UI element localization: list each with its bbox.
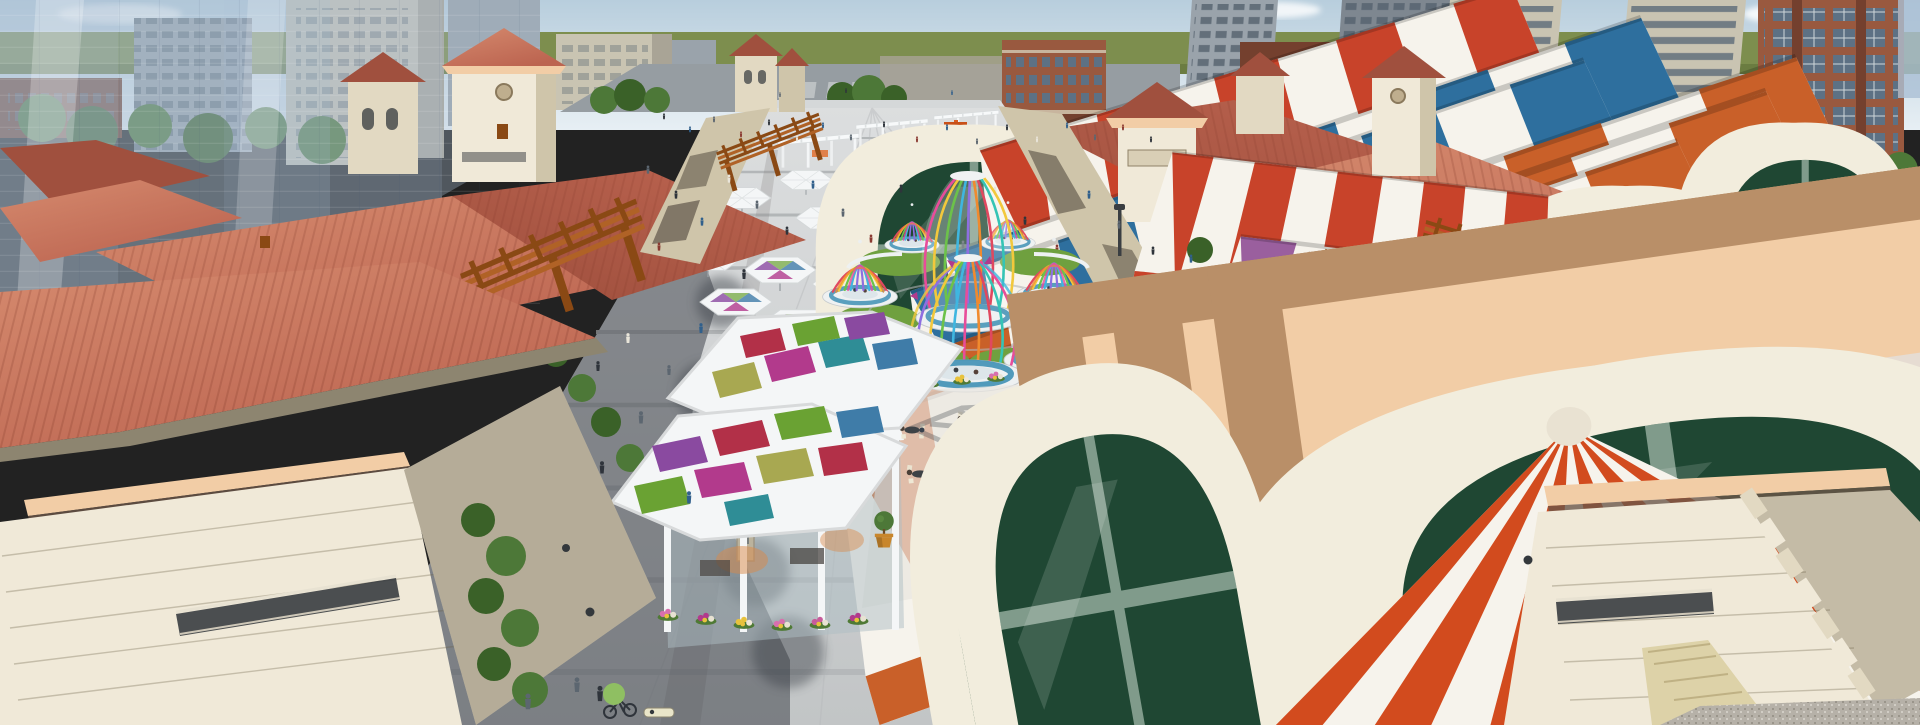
plaza-scene bbox=[0, 0, 1920, 725]
architectural-rendering bbox=[0, 0, 1920, 725]
shrub bbox=[603, 683, 625, 705]
chimney bbox=[497, 124, 508, 139]
glass-sliver-tower bbox=[1898, 0, 1920, 98]
wall-lantern bbox=[1524, 556, 1533, 565]
wall-lantern bbox=[562, 544, 570, 552]
